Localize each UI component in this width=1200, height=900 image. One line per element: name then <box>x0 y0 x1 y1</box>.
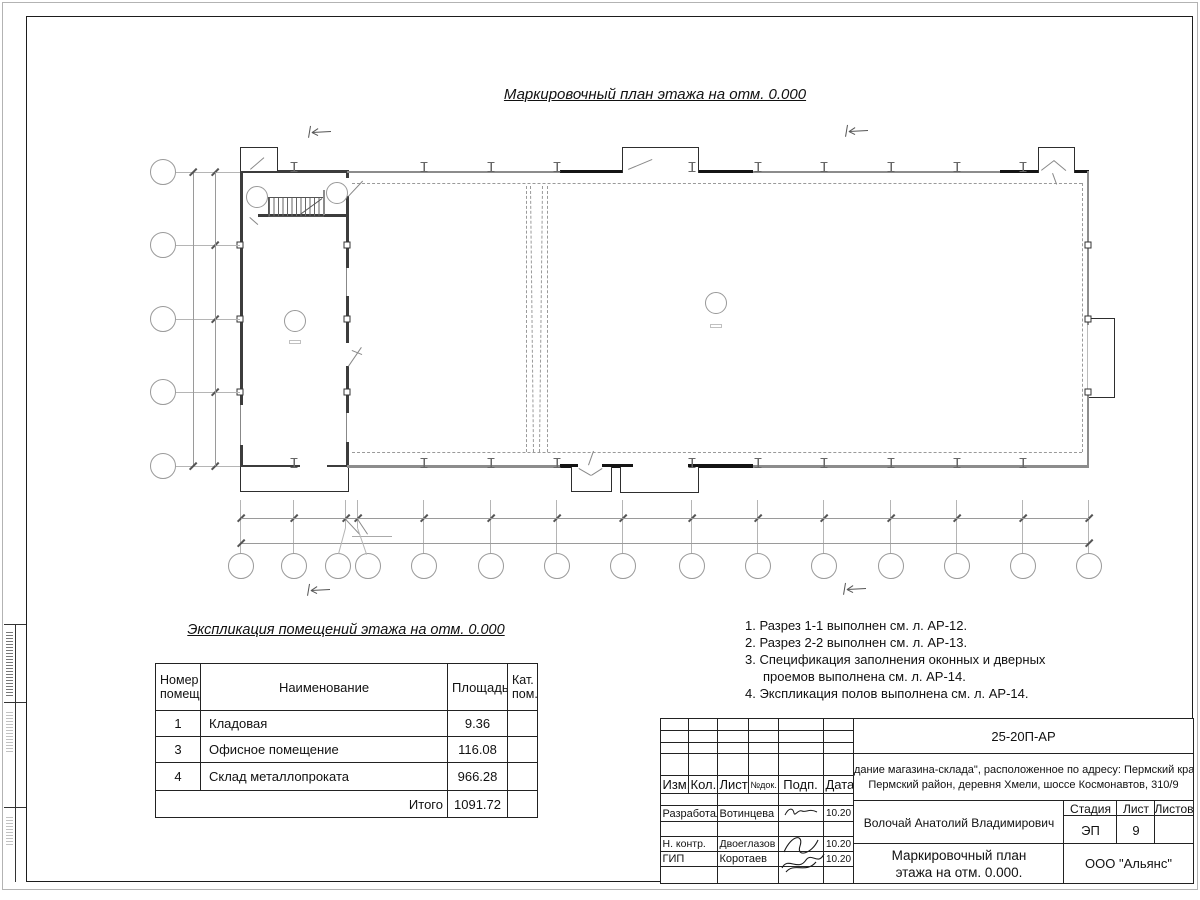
tb-sheets-value <box>1154 815 1194 845</box>
axis-number-4 <box>355 553 381 579</box>
tb-doc-code: 25-20П-АР <box>853 718 1194 755</box>
inner-dashed-line-top <box>352 183 1082 184</box>
gate-v1-right-opening-line <box>1087 325 1088 390</box>
axis-number-11 <box>811 553 837 579</box>
expl-cell: 966.28 <box>448 763 508 791</box>
dim-line-bottom <box>241 518 1089 519</box>
axis-extension-line <box>691 500 692 554</box>
axis-letter-2 <box>150 232 176 258</box>
axis-extension-line <box>622 500 623 554</box>
entry-porch-topleft <box>240 147 278 171</box>
window-tick <box>421 458 428 468</box>
office-left-wall <box>240 170 243 405</box>
tb-stage-value: ЭП <box>1063 815 1118 845</box>
window-tick <box>689 162 696 172</box>
column-marker <box>1085 389 1092 396</box>
tb-name-gip: Коротаев <box>717 852 778 867</box>
stair-partition <box>323 190 325 215</box>
axis-number-7 <box>544 553 570 579</box>
tb-signature-developer <box>778 806 823 822</box>
tb-role-ncontr: Н. контр. <box>660 837 717 852</box>
notes-list: 1. Разрез 1-1 выполнен см. л. АР-12.2. Р… <box>745 617 1080 702</box>
office-warehouse-wall <box>346 196 349 268</box>
gate-v1-right-porch <box>1089 318 1115 398</box>
dim-line-left-total <box>193 172 194 466</box>
window-tick <box>291 162 298 172</box>
window-tick <box>1020 458 1027 468</box>
dim-800-underline <box>352 536 392 537</box>
window-tick <box>1020 162 1027 172</box>
tb-date-gip: 10.20 <box>823 852 854 867</box>
axis-number-10 <box>745 553 771 579</box>
warehouse-top-wall-pier <box>560 170 625 174</box>
tb-col-izm: Изм. <box>660 776 688 794</box>
dim-line-bottom-total <box>241 543 1089 544</box>
expl-cell: 3 <box>156 737 201 763</box>
axis-extension-line <box>357 500 358 528</box>
office-left-wall <box>240 445 243 466</box>
note-item: 2. Разрез 2-2 выполнен см. л. АР-13. <box>745 634 1080 651</box>
window-tick <box>488 162 495 172</box>
window-tick <box>291 458 298 468</box>
column-marker <box>344 242 351 249</box>
tb-name-developer: Вотинцева <box>717 806 778 822</box>
inner-dashed-line-right <box>1082 183 1083 452</box>
gate-v1-top-porch <box>622 147 699 173</box>
total-value: 1091.72 <box>448 791 508 818</box>
axis-letter-3 <box>150 306 176 332</box>
expl-cell: Офисное помещение <box>201 737 448 763</box>
office-warehouse-wall <box>346 442 349 466</box>
column-marker <box>1085 242 1092 249</box>
dim-line-left <box>215 172 216 466</box>
axis-extension-line <box>176 466 240 467</box>
axis-number-12 <box>878 553 904 579</box>
tb-sheet-value: 9 <box>1116 815 1156 845</box>
axis-number-14 <box>1010 553 1036 579</box>
axis-extension-line <box>823 500 824 554</box>
expl-cell: 4 <box>156 763 201 791</box>
axis-extension-line <box>176 392 240 393</box>
axis-number-5 <box>411 553 437 579</box>
axis-number-8 <box>610 553 636 579</box>
tb-col-ndok: №док. <box>748 776 778 794</box>
column-marker <box>344 389 351 396</box>
room-tag-2 <box>246 186 268 208</box>
tb-project-line2: Пермский район, деревня Хмели, шоссе Кос… <box>868 778 1178 793</box>
crane-runway-line <box>526 186 527 452</box>
room-tag-1 <box>326 182 348 204</box>
axis-extension-line <box>176 319 240 320</box>
inner-dashed-line-bottom <box>352 452 1082 453</box>
window-tick <box>954 458 961 468</box>
axis-number-2 <box>281 553 307 579</box>
column-marker <box>1085 316 1092 323</box>
window-tick <box>554 162 561 172</box>
tb-drawing-name-line2: этажа на отм. 0.000. <box>896 864 1023 881</box>
axis-number-15 <box>1076 553 1102 579</box>
expl-cell <box>508 737 538 763</box>
window-tick <box>888 458 895 468</box>
axis-extension-line <box>345 500 346 528</box>
axis-extension-line <box>423 500 424 554</box>
tb-drawing-name-line1: Маркировочный план <box>892 847 1027 864</box>
tb-date-ncontr: 10.20 <box>823 837 854 852</box>
axis-number-3 <box>325 553 351 579</box>
col-header-name: Наименование <box>201 664 448 711</box>
elevation-mark <box>289 340 301 344</box>
tb-project-line1: "Здание магазина-склада", расположенное … <box>853 763 1194 778</box>
window-tick <box>821 458 828 468</box>
window-ok4-lower-glass <box>346 413 347 442</box>
window-tick <box>554 458 561 468</box>
expl-cell: 9.36 <box>448 711 508 737</box>
axis-extension-line <box>556 500 557 554</box>
axis-extension-line <box>1022 500 1023 554</box>
tb-project-name: "Здание магазина-склада", расположенное … <box>853 753 1194 802</box>
margin-rotated-text <box>6 712 13 752</box>
expl-cell <box>508 763 538 791</box>
stairs <box>268 197 324 217</box>
tb-drawing-name: Маркировочный план этажа на отм. 0.000. <box>853 843 1065 884</box>
axis-number-6 <box>478 553 504 579</box>
window-ok5-left-glass <box>240 405 241 445</box>
col-header-area: Площадь <box>448 664 508 711</box>
window-tick <box>821 162 828 172</box>
note-item: 4. Экспликация полов выполнена см. л. АР… <box>745 685 1080 702</box>
axis-extension-line <box>1088 500 1089 554</box>
axis-letter-1 <box>150 159 176 185</box>
axis-extension-line <box>490 500 491 554</box>
signature-scribble-icon <box>778 832 826 876</box>
tb-role-developer: Разработал <box>660 806 717 822</box>
window-ok4-upper-glass <box>346 268 347 296</box>
axis-extension-line <box>240 500 241 554</box>
tb-date-developer: 10.20 <box>823 806 854 822</box>
margin-rotated-text <box>6 630 13 696</box>
tb-col-data: Дата <box>823 776 854 794</box>
axis-extension-line <box>293 500 294 554</box>
expl-cell: 1 <box>156 711 201 737</box>
window-tick <box>954 162 961 172</box>
window-tick <box>755 458 762 468</box>
signature-icon <box>782 806 820 818</box>
axis-letter-5 <box>150 453 176 479</box>
total-label: Итого <box>201 791 448 818</box>
elevation-mark <box>710 324 722 328</box>
drawing-title: Маркировочный план этажа на отм. 0.000 <box>504 86 806 103</box>
window-tick <box>488 458 495 468</box>
axis-extension-line <box>757 500 758 554</box>
note-item: 3. Спецификация заполнения оконных и две… <box>745 651 1080 685</box>
axis-number-1 <box>228 553 254 579</box>
tb-col-kol: Кол. <box>688 776 717 794</box>
drawing-sheet: Маркировочный план этажа на отм. 0.000 Э… <box>0 0 1200 900</box>
col-header-room-number: Номер помещ. <box>156 664 201 711</box>
margin-rotated-text <box>6 815 13 845</box>
tb-role-gip: ГИП <box>660 852 717 867</box>
explication-title: Экспликация помещений этажа на отм. 0.00… <box>187 622 504 638</box>
tb-name-ncontr: Двоеглазов <box>717 837 778 852</box>
tb-col-list: Лист <box>717 776 748 794</box>
room-tag-4 <box>705 292 727 314</box>
column-marker <box>344 316 351 323</box>
axis-extension-line <box>176 172 240 173</box>
tb-supervisor: Волочай Анатолий Владимирович <box>853 800 1065 845</box>
window-tick <box>421 162 428 172</box>
expl-cell: Кладовая <box>201 711 448 737</box>
margin-box-line <box>15 624 16 882</box>
expl-cell: Склад металлопроката <box>201 763 448 791</box>
axis-extension-line <box>176 245 240 246</box>
axis-extension-line <box>956 500 957 554</box>
axis-letter-4 <box>150 379 176 405</box>
crane-runway-line <box>547 186 548 452</box>
warehouse-right-wall <box>1087 390 1089 466</box>
tb-company: ООО "Альянс" <box>1063 843 1194 884</box>
window-tick <box>888 162 895 172</box>
col-header-category: Кат. пом. <box>508 664 538 711</box>
explication-table: Номер помещ. Наименование Площадь Кат. п… <box>155 663 538 818</box>
expl-cell <box>508 711 538 737</box>
door-d2-porch <box>571 467 612 492</box>
room-tag-3 <box>284 310 306 332</box>
axis-extension-line <box>890 500 891 554</box>
window-tick <box>755 162 762 172</box>
gate-v1-bottom-porch <box>620 467 699 493</box>
window-tick <box>689 458 696 468</box>
expl-cell: 116.08 <box>448 737 508 763</box>
office-porch-bottom <box>240 467 349 492</box>
tb-col-podp: Подп. <box>778 776 823 794</box>
axis-number-9 <box>679 553 705 579</box>
axis-number-13 <box>944 553 970 579</box>
note-item: 1. Разрез 1-1 выполнен см. л. АР-12. <box>745 617 1080 634</box>
